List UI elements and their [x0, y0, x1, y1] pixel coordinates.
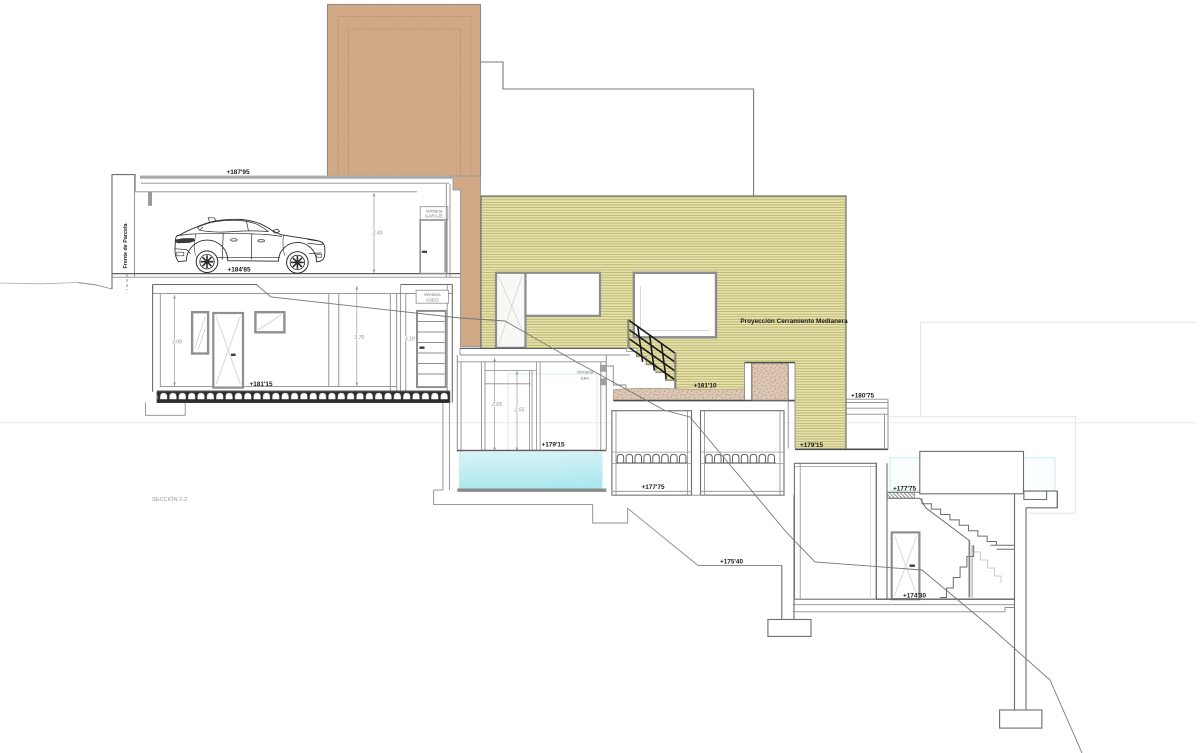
- svg-text:+177'75: +177'75: [893, 485, 916, 492]
- svg-text:ASEO: ASEO: [426, 297, 439, 302]
- svg-text:+179'15: +179'15: [541, 442, 564, 449]
- svg-text:+180'75: +180'75: [851, 392, 874, 399]
- svg-text:SPA: SPA: [581, 376, 591, 381]
- svg-text:3.10: 3.10: [405, 337, 415, 343]
- svg-text:+181'15: +181'15: [249, 381, 272, 388]
- svg-text:+187'95: +187'95: [226, 169, 249, 176]
- svg-text:3.70: 3.70: [354, 335, 364, 341]
- svg-text:GARAJE: GARAJE: [425, 214, 443, 219]
- svg-text:Ventana: Ventana: [426, 208, 443, 213]
- svg-text:+175'40: +175'40: [720, 559, 743, 566]
- svg-text:Proyección Cerramiento Mediane: Proyección Cerramiento Medianera: [740, 318, 848, 325]
- svg-text:+177'75: +177'75: [641, 484, 664, 491]
- svg-text:+174'30: +174'30: [903, 593, 926, 600]
- svg-text:+184'85: +184'85: [227, 267, 250, 274]
- svg-text:3.00: 3.00: [172, 340, 182, 346]
- svg-text:+179'15: +179'15: [800, 442, 823, 449]
- svg-text:2.55: 2.55: [514, 408, 525, 414]
- svg-text:Frente de Parcela: Frente de Parcela: [123, 223, 129, 269]
- svg-text:2.65: 2.65: [491, 402, 502, 408]
- svg-text:+181'10: +181'10: [693, 382, 716, 389]
- svg-text:Ventana: Ventana: [424, 292, 441, 297]
- svg-text:2.40: 2.40: [372, 231, 383, 237]
- svg-text:SECCIÓN 2-2': SECCIÓN 2-2': [152, 496, 188, 503]
